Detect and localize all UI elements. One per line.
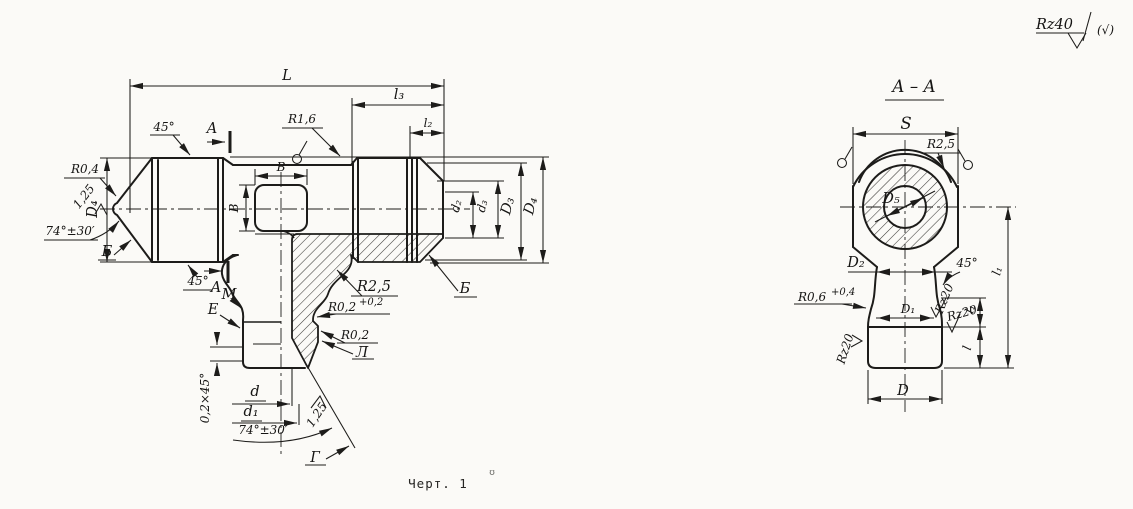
- centerlines: [100, 172, 470, 458]
- dim-D-label: D: [896, 383, 909, 399]
- main-view: L l₃ l₂ D₄ В В: [44, 68, 549, 466]
- dim-D3-label: D₃: [498, 195, 518, 217]
- roughness-check-icon-top: [293, 141, 308, 164]
- surface-G-label: Г: [309, 450, 321, 466]
- surface-E: E: [207, 302, 240, 328]
- radius-R25-aa-label: R2,5: [926, 137, 955, 151]
- surface-M-label: M: [221, 287, 238, 303]
- radius-R04-label: R0,4: [70, 162, 99, 176]
- dim-d2-label: d₂: [448, 198, 465, 214]
- surface-M: M: [221, 287, 241, 308]
- dim-l2-label: l₂: [424, 116, 433, 130]
- dim-d: d: [232, 368, 292, 406]
- angle-45-aa-label: 45°: [955, 256, 977, 270]
- callout-74-left: 74°±30′: [44, 221, 119, 240]
- radius-R02-tol-label: R0,2: [327, 300, 356, 314]
- dim-d1-label: d₁: [243, 404, 258, 420]
- radius-R16-label: R1,6: [287, 112, 316, 126]
- dim-l2: l₂: [410, 116, 444, 157]
- general-roughness-label: Rz40: [1035, 17, 1073, 33]
- roughness-rz20-3: Rz20: [833, 332, 862, 367]
- drawing-sheet: L l₃ l₂ D₄ В В: [0, 0, 1133, 509]
- roughness-rz20-3-label: Rz20: [833, 332, 856, 367]
- radius-R06-label: R0,6: [797, 290, 826, 304]
- section-marker-top: A: [205, 121, 230, 153]
- angle-45-bottom-label: 45°: [186, 274, 208, 288]
- roughness-check-icon-aa-left: [838, 147, 853, 168]
- dim-l-label: l: [960, 344, 975, 351]
- dim-d1: d₁: [232, 404, 299, 425]
- surface-B-right: Б: [429, 255, 477, 297]
- roughness-alt-check: (√): [1097, 23, 1114, 37]
- angle-45-top-label: 45°: [152, 120, 174, 134]
- callout-R25: R2,5: [337, 270, 398, 296]
- roughness-125-bottom: 1,25: [303, 396, 330, 430]
- drawing-caption: Черт. 1: [408, 476, 468, 491]
- callout-R06: R0,6 +0,4: [794, 287, 866, 308]
- surface-B-left: Б: [98, 240, 131, 260]
- section-view-title: А – А: [891, 77, 936, 96]
- dim-l1-long: l₁: [989, 207, 1008, 368]
- dim-D4-right-label: D₄: [521, 195, 541, 217]
- callout-R02-tol: R0,2 +0,2: [317, 297, 390, 317]
- surface-E-label: E: [207, 302, 219, 318]
- section-view-a-a: А – А S R2,5: [794, 77, 1016, 412]
- dim-chamfer-02: 0,2×45°: [198, 333, 243, 423]
- dim-D1-label: D₁: [900, 302, 915, 316]
- surface-B-left-label: Б: [101, 244, 113, 260]
- dim-l1-long-label: l₁: [989, 265, 1005, 277]
- radius-R02-tol-sup: +0,2: [359, 297, 383, 308]
- surface-L: Л: [322, 341, 374, 361]
- dim-D5-label: D₅: [881, 191, 900, 207]
- dim-d2: d₂: [445, 192, 504, 238]
- callout-R02: R0,2: [321, 328, 378, 343]
- angle-74-bottom-label: 74°±30′: [238, 423, 288, 437]
- dim-chamfer-02-label: 0,2×45°: [198, 373, 212, 423]
- section-A-bottom-label: A: [209, 280, 221, 296]
- radius-R25-label: R2,5: [356, 279, 391, 295]
- callout-45-aa: 45°: [943, 256, 978, 285]
- stray-mark: ʊ: [489, 468, 495, 478]
- dim-D2-label: D₂: [846, 255, 865, 271]
- engineering-drawing-canvas: L l₃ l₂ D₄ В В: [0, 0, 1133, 509]
- dim-D1: D₁: [876, 302, 934, 322]
- callout-45-bottom: 45°: [183, 265, 213, 290]
- radius-R06-sup: +0,4: [831, 287, 855, 298]
- dim-d3-label: d₃: [474, 198, 491, 214]
- dim-l: l: [944, 327, 1014, 368]
- section-A-top-label: A: [205, 121, 217, 137]
- dim-B-v-label: В: [227, 203, 241, 213]
- dim-d-label: d: [250, 384, 259, 400]
- dim-l3-label: l₃: [394, 87, 405, 103]
- radius-R02-label: R0,2: [340, 328, 369, 342]
- roughness-125-bottom-label: 1,25: [303, 400, 330, 430]
- dim-L-label: L: [281, 68, 292, 84]
- dim-B-vertical: В: [227, 185, 255, 231]
- callout-R16: R1,6: [282, 112, 340, 156]
- dim-S-label: S: [900, 114, 911, 133]
- surface-B-right-label: Б: [459, 281, 471, 297]
- callout-45-top: 45°: [150, 120, 190, 155]
- dim-B-h-label: В: [276, 160, 286, 174]
- roughness-check-icon-aa-right: [958, 149, 973, 170]
- angle-74-left-label: 74°±30′: [45, 224, 95, 238]
- general-roughness-note: Rz40 (√): [1035, 12, 1114, 48]
- surface-G: Г: [305, 446, 349, 466]
- callout-R25-aa: R2,5: [923, 137, 960, 168]
